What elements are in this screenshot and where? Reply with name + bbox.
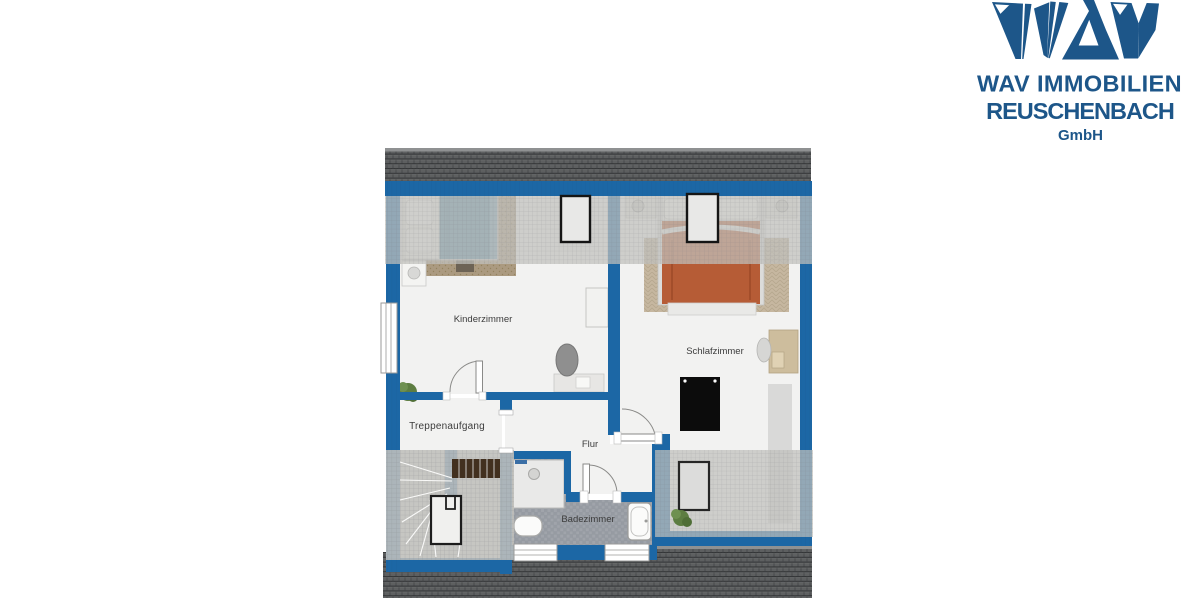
svg-text:REUSCHENBACH: REUSCHENBACH	[986, 98, 1174, 124]
svg-text:Kinderzimmer: Kinderzimmer	[454, 314, 513, 325]
svg-text:Badezimmer: Badezimmer	[561, 514, 614, 525]
svg-text:GmbH: GmbH	[1058, 127, 1103, 144]
svg-text:WAV IMMOBILIEN: WAV IMMOBILIEN	[977, 71, 1182, 97]
svg-text:Flur: Flur	[582, 439, 598, 450]
svg-text:Schlafzimmer: Schlafzimmer	[686, 346, 744, 357]
svg-text:Treppenaufgang: Treppenaufgang	[409, 421, 485, 432]
